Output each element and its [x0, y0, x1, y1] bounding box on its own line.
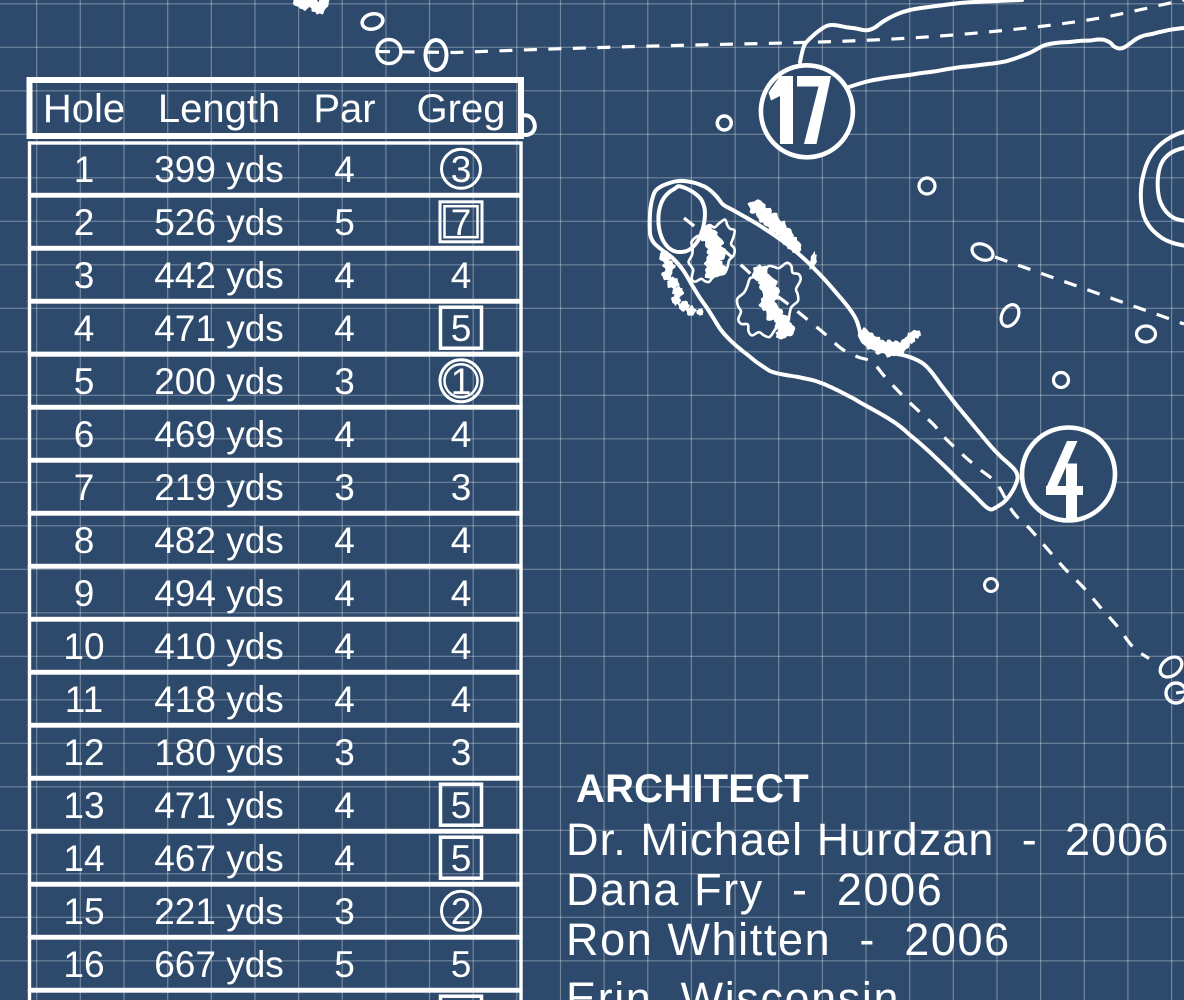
- svg-text:221 yds: 221 yds: [154, 891, 284, 932]
- svg-text:442 yds: 442 yds: [154, 255, 284, 296]
- svg-text:14: 14: [63, 838, 104, 879]
- svg-text:3: 3: [451, 149, 472, 190]
- svg-text:3: 3: [334, 732, 355, 773]
- svg-text:482 yds: 482 yds: [154, 520, 284, 561]
- svg-text:4: 4: [334, 149, 355, 190]
- svg-text:8: 8: [74, 520, 95, 561]
- svg-text:Dana Fry - 2006: Dana Fry - 2006: [566, 864, 943, 915]
- svg-text:7: 7: [74, 467, 95, 508]
- svg-text:ARCHITECT: ARCHITECT: [576, 767, 809, 811]
- svg-text:410 yds: 410 yds: [154, 626, 284, 667]
- svg-text:11: 11: [65, 679, 103, 720]
- svg-text:3: 3: [451, 467, 472, 508]
- svg-text:4: 4: [334, 520, 355, 561]
- svg-text:Dr. Michael Hurdzan - 2006: Dr. Michael Hurdzan - 2006: [566, 814, 1170, 865]
- svg-text:9: 9: [74, 573, 95, 614]
- svg-text:5: 5: [451, 838, 472, 879]
- svg-text:1: 1: [451, 361, 472, 402]
- svg-text:4: 4: [451, 626, 472, 667]
- svg-text:2: 2: [451, 891, 472, 932]
- svg-text:4: 4: [334, 308, 355, 349]
- svg-text:Par: Par: [313, 87, 375, 131]
- svg-text:494 yds: 494 yds: [154, 573, 284, 614]
- svg-text:13: 13: [63, 785, 104, 826]
- svg-text:4: 4: [74, 308, 95, 349]
- svg-text:4: 4: [334, 679, 355, 720]
- svg-text:4: 4: [334, 573, 355, 614]
- svg-text:4: 4: [334, 626, 355, 667]
- svg-text:4: 4: [334, 255, 355, 296]
- svg-text:7: 7: [451, 202, 472, 243]
- svg-text:15: 15: [63, 891, 104, 932]
- svg-text:5: 5: [451, 944, 472, 985]
- svg-text:3: 3: [74, 255, 95, 296]
- svg-text:399 yds: 399 yds: [154, 149, 284, 190]
- svg-text:526 yds: 526 yds: [154, 202, 284, 243]
- svg-text:418 yds: 418 yds: [154, 679, 284, 720]
- svg-text:16: 16: [63, 944, 104, 985]
- svg-text:Greg: Greg: [417, 87, 506, 131]
- svg-text:Length: Length: [158, 87, 280, 131]
- svg-text:4: 4: [451, 573, 472, 614]
- svg-text:4: 4: [334, 414, 355, 455]
- svg-text:3: 3: [334, 361, 355, 402]
- svg-text:Erin, Wisconsin: Erin, Wisconsin: [566, 973, 900, 1000]
- svg-text:5: 5: [74, 361, 95, 402]
- svg-text:2: 2: [74, 202, 95, 243]
- svg-text:467 yds: 467 yds: [154, 838, 284, 879]
- svg-text:5: 5: [451, 785, 472, 826]
- svg-text:5: 5: [334, 202, 355, 243]
- svg-text:3: 3: [334, 891, 355, 932]
- svg-text:4: 4: [334, 785, 355, 826]
- svg-text:Hole: Hole: [43, 87, 125, 131]
- svg-text:469 yds: 469 yds: [154, 414, 284, 455]
- svg-text:4: 4: [451, 255, 472, 296]
- svg-text:4: 4: [451, 520, 472, 561]
- svg-text:5: 5: [334, 944, 355, 985]
- svg-text:12: 12: [63, 732, 104, 773]
- svg-text:4: 4: [451, 414, 472, 455]
- svg-text:5: 5: [451, 308, 472, 349]
- svg-text:4: 4: [451, 679, 472, 720]
- svg-text:Ron Whitten - 2006: Ron Whitten - 2006: [566, 914, 1011, 965]
- svg-text:3: 3: [334, 467, 355, 508]
- svg-text:6: 6: [74, 414, 95, 455]
- svg-text:219 yds: 219 yds: [154, 467, 284, 508]
- svg-text:4: 4: [334, 838, 355, 879]
- svg-text:180 yds: 180 yds: [154, 732, 284, 773]
- svg-text:667 yds: 667 yds: [154, 944, 284, 985]
- svg-text:10: 10: [63, 626, 104, 667]
- svg-text:471 yds: 471 yds: [154, 308, 284, 349]
- svg-text:1: 1: [74, 149, 95, 190]
- svg-text:471 yds: 471 yds: [154, 785, 284, 826]
- svg-text:3: 3: [451, 732, 472, 773]
- svg-text:200 yds: 200 yds: [154, 361, 284, 402]
